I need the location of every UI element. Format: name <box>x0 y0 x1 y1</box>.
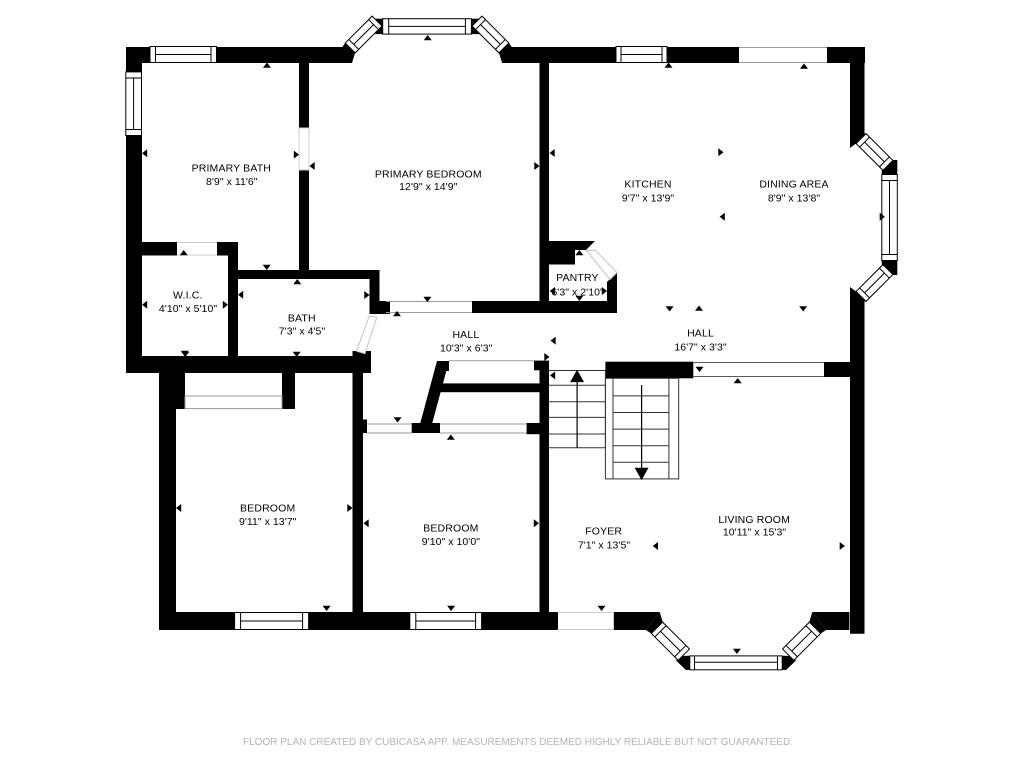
svg-text:4'10" x 5'10": 4'10" x 5'10" <box>159 303 217 315</box>
svg-text:KITCHEN: KITCHEN <box>624 179 671 191</box>
svg-text:HALL: HALL <box>687 328 714 340</box>
svg-text:10'3" x 6'3": 10'3" x 6'3" <box>440 342 493 354</box>
svg-text:7'1" x 13'5": 7'1" x 13'5" <box>578 539 631 551</box>
svg-text:DINING AREA: DINING AREA <box>759 179 828 191</box>
svg-text:HALL: HALL <box>452 329 479 341</box>
svg-text:BEDROOM: BEDROOM <box>423 522 478 534</box>
svg-text:BATH: BATH <box>288 312 316 324</box>
svg-text:16'7" x 3'3": 16'7" x 3'3" <box>674 342 727 354</box>
svg-text:LIVING ROOM: LIVING ROOM <box>718 514 790 526</box>
svg-text:9'11" x 13'7": 9'11" x 13'7" <box>239 516 297 528</box>
svg-text:BEDROOM: BEDROOM <box>240 502 295 514</box>
svg-text:PRIMARY BEDROOM: PRIMARY BEDROOM <box>375 169 482 181</box>
svg-text:8'9" x 11'6": 8'9" x 11'6" <box>206 176 258 188</box>
svg-text:W.I.C.: W.I.C. <box>173 289 202 301</box>
svg-text:PANTRY: PANTRY <box>556 272 599 284</box>
svg-text:FLOOR PLAN CREATED BY CUBICASA: FLOOR PLAN CREATED BY CUBICASA APP. MEAS… <box>243 737 793 748</box>
svg-text:10'11" x 15'3": 10'11" x 15'3" <box>723 526 787 538</box>
svg-text:6'3" x 2'10": 6'3" x 2'10" <box>551 286 604 298</box>
svg-text:9'7" x 13'9": 9'7" x 13'9" <box>622 192 675 204</box>
svg-text:8'9" x 13'8": 8'9" x 13'8" <box>768 192 821 204</box>
svg-text:9'10" x 10'0": 9'10" x 10'0" <box>422 536 480 548</box>
svg-text:FOYER: FOYER <box>585 526 622 538</box>
svg-text:PRIMARY BATH: PRIMARY BATH <box>192 162 271 174</box>
svg-text:12'9" x 14'9": 12'9" x 14'9" <box>399 181 457 193</box>
svg-text:7'3" x 4'5": 7'3" x 4'5" <box>279 325 326 337</box>
